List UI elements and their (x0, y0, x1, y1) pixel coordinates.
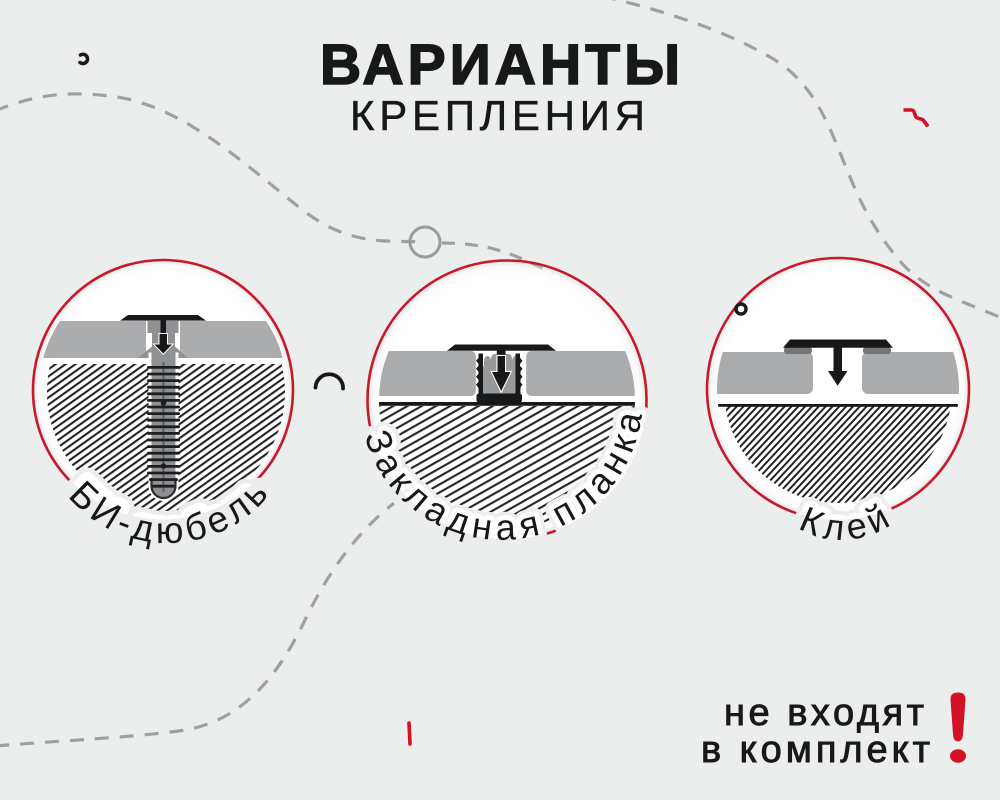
svg-text:ВАРИАНТЫ: ВАРИАНТЫ (320, 33, 680, 97)
svg-text:не входят: не входят (724, 692, 924, 734)
svg-text:ю: ю (155, 510, 183, 551)
svg-text:КРЕПЛЕНИЯ: КРЕПЛЕНИЯ (350, 92, 645, 139)
svg-text:а: а (495, 506, 517, 548)
svg-text:в комплект: в комплект (701, 729, 930, 771)
